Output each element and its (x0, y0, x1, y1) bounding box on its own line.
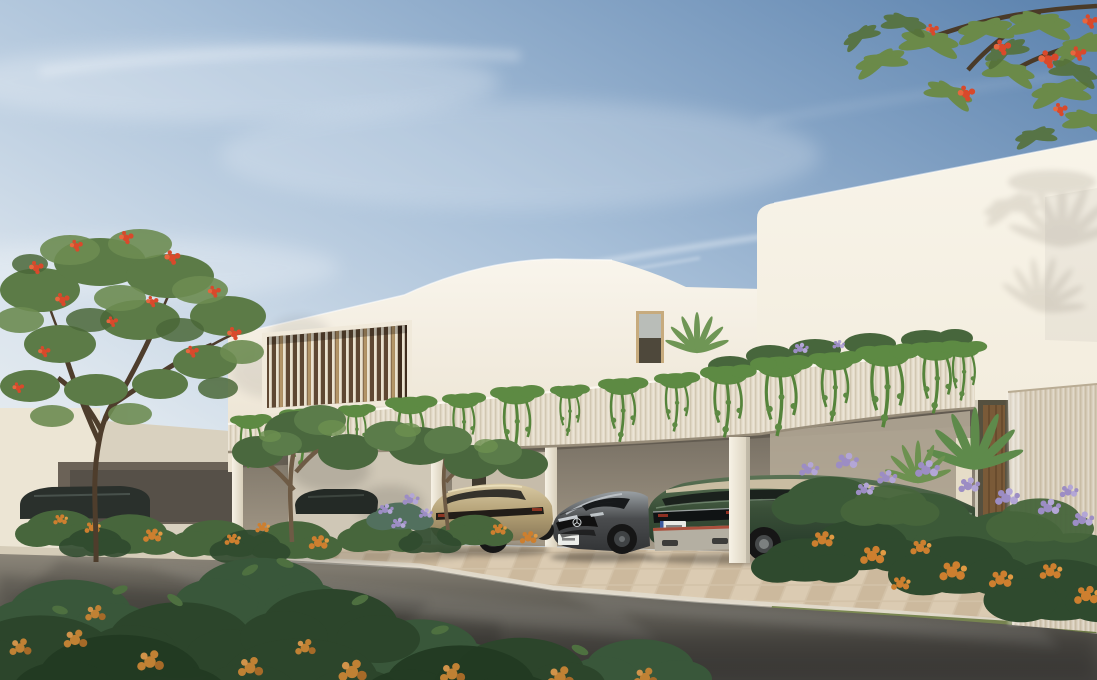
sedan-front-wheel (607, 524, 637, 554)
villa-scene (0, 0, 1097, 680)
architectural-rendering (0, 0, 1097, 680)
distant-dark-sedan (295, 489, 378, 514)
terrace-door (636, 311, 664, 363)
